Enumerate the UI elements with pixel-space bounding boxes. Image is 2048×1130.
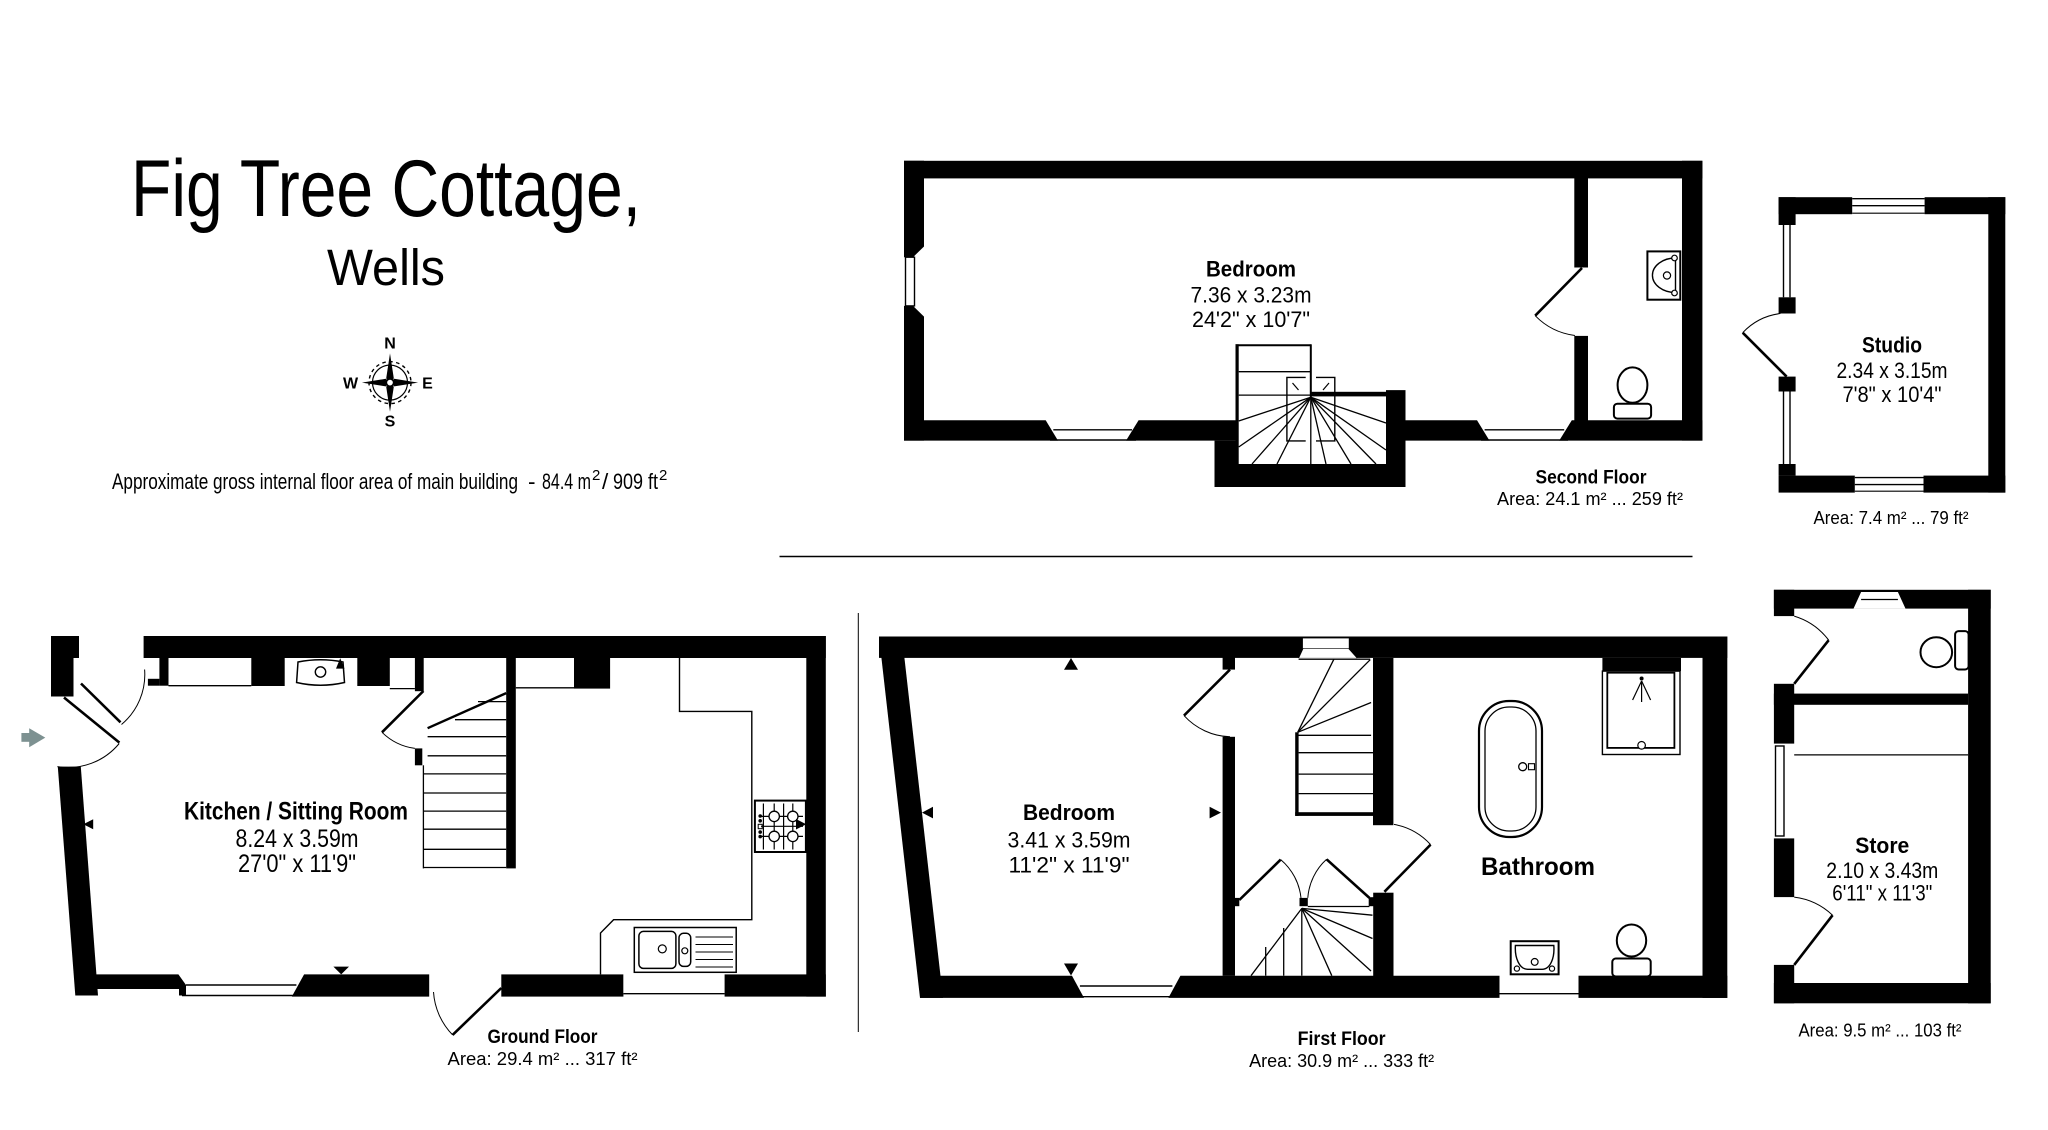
svg-text:11'2" x 11'9": 11'2" x 11'9" xyxy=(1009,853,1130,878)
svg-text:2.10 x 3.43m: 2.10 x 3.43m xyxy=(1826,858,1938,883)
svg-text:Second Floor: Second Floor xyxy=(1536,468,1648,489)
svg-text:-: - xyxy=(528,469,536,494)
svg-text:8.24 x 3.59m: 8.24 x 3.59m xyxy=(236,825,359,853)
svg-text:Wells: Wells xyxy=(327,239,445,296)
svg-text:Area: 7.4 m² ... 79 ft²: Area: 7.4 m² ... 79 ft² xyxy=(1814,508,1969,528)
svg-text:Area: 9.5 m² ... 103 ft²: Area: 9.5 m² ... 103 ft² xyxy=(1799,1020,1962,1040)
svg-text:84.4 m: 84.4 m xyxy=(542,469,591,494)
svg-text:Ground Floor: Ground Floor xyxy=(488,1027,599,1048)
svg-text:24'2" x 10'7": 24'2" x 10'7" xyxy=(1192,307,1310,332)
svg-text:909 ft: 909 ft xyxy=(613,469,659,494)
svg-text:2.34 x 3.15m: 2.34 x 3.15m xyxy=(1837,358,1948,383)
svg-text:2: 2 xyxy=(659,467,667,484)
svg-text:/: / xyxy=(602,469,609,494)
svg-text:Bedroom: Bedroom xyxy=(1206,257,1296,282)
svg-text:7'8" x 10'4": 7'8" x 10'4" xyxy=(1843,382,1942,407)
svg-text:Bedroom: Bedroom xyxy=(1023,800,1115,825)
svg-text:Approximate gross internal flo: Approximate gross internal floor area of… xyxy=(112,469,518,494)
svg-text:S: S xyxy=(385,414,396,431)
svg-text:E: E xyxy=(422,376,433,393)
svg-text:Area: 24.1 m² ... 259 ft²: Area: 24.1 m² ... 259 ft² xyxy=(1497,489,1683,509)
svg-text:Area: 29.4 m² ... 317 ft²: Area: 29.4 m² ... 317 ft² xyxy=(448,1049,638,1069)
svg-text:W: W xyxy=(343,376,359,393)
svg-text:3.41 x 3.59m: 3.41 x 3.59m xyxy=(1008,828,1131,853)
svg-text:First Floor: First Floor xyxy=(1298,1029,1387,1050)
svg-text:2: 2 xyxy=(592,467,600,484)
svg-text:Bathroom: Bathroom xyxy=(1481,853,1595,881)
svg-text:7.36 x 3.23m: 7.36 x 3.23m xyxy=(1191,283,1312,308)
svg-text:N: N xyxy=(384,336,396,353)
svg-text:Store: Store xyxy=(1855,833,1909,858)
svg-text:Area: 30.9 m² ... 333 ft²: Area: 30.9 m² ... 333 ft² xyxy=(1249,1051,1434,1071)
svg-text:27'0" x 11'9": 27'0" x 11'9" xyxy=(238,850,356,878)
svg-text:Fig Tree Cottage,: Fig Tree Cottage, xyxy=(131,144,641,234)
svg-text:Kitchen / Sitting Room: Kitchen / Sitting Room xyxy=(184,798,408,826)
svg-text:Studio: Studio xyxy=(1862,333,1922,358)
svg-text:6'11" x 11'3": 6'11" x 11'3" xyxy=(1832,881,1932,906)
